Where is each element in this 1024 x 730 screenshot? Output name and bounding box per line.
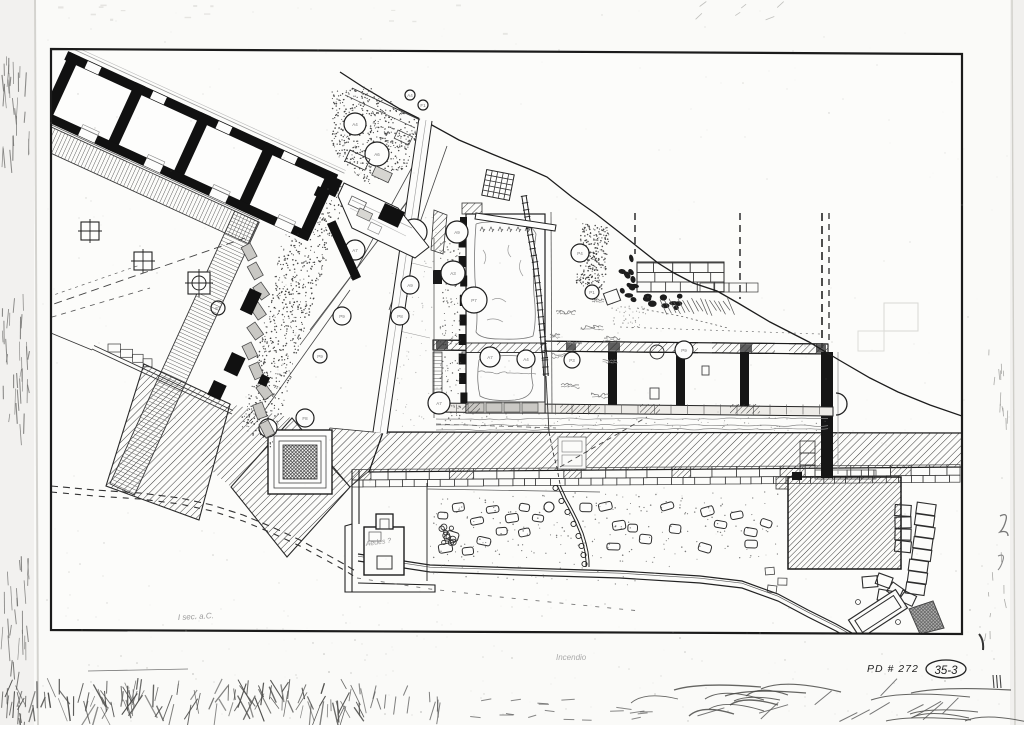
svg-text:A9: A9 (454, 230, 460, 235)
svg-text:P4: P4 (577, 251, 583, 256)
svg-text:P1: P1 (589, 290, 595, 295)
svg-text:A9: A9 (407, 283, 413, 288)
svg-text:P8: P8 (397, 314, 403, 319)
svg-text:P7: P7 (471, 298, 477, 303)
svg-text:F8: F8 (302, 416, 308, 421)
svg-text:Incendio: Incendio (556, 653, 587, 662)
svg-text:35-3: 35-3 (934, 665, 958, 677)
svg-text:F1: F1 (420, 103, 426, 108)
svg-text:P9: P9 (681, 348, 687, 353)
svg-text:A4: A4 (523, 357, 529, 362)
svg-text:I sec. a.C.: I sec. a.C. (178, 611, 214, 622)
svg-text:P3: P3 (569, 358, 575, 363)
svg-text:P9: P9 (317, 354, 323, 359)
svg-text:A7: A7 (436, 401, 442, 406)
svg-text:P9: P9 (339, 314, 345, 319)
svg-text:A3: A3 (450, 271, 456, 276)
svg-text:A4: A4 (352, 122, 358, 127)
svg-text:PD # 272: PD # 272 (867, 663, 919, 675)
svg-text:A7: A7 (352, 248, 358, 253)
svg-text:A6: A6 (374, 152, 380, 157)
svg-text:A7: A7 (487, 355, 493, 360)
svg-text:A4: A4 (407, 93, 413, 98)
